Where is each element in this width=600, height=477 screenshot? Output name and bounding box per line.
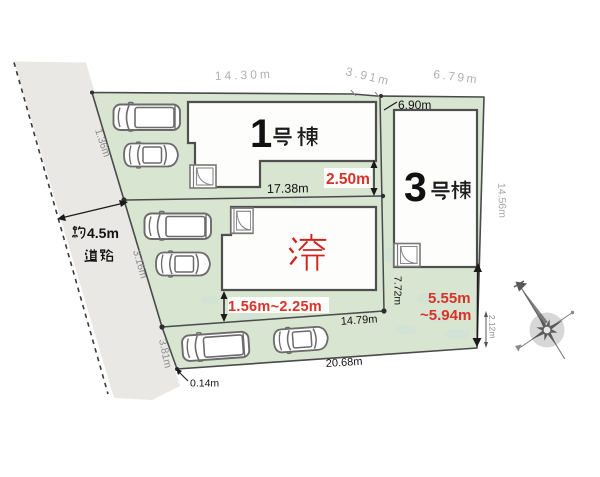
svg-text:14.30m: 14.30m bbox=[215, 67, 273, 83]
svg-text:5.55m: 5.55m bbox=[428, 290, 471, 307]
svg-text:14.56m: 14.56m bbox=[495, 183, 508, 219]
svg-text:1.56m~2.25m: 1.56m~2.25m bbox=[228, 299, 322, 315]
svg-text:2.50m: 2.50m bbox=[326, 171, 370, 188]
svg-text:20.68m: 20.68m bbox=[325, 356, 362, 370]
svg-text:6.79m: 6.79m bbox=[433, 67, 480, 86]
svg-text:0.14m: 0.14m bbox=[190, 378, 219, 390]
svg-text:3: 3 bbox=[404, 164, 427, 210]
svg-text:6.90m: 6.90m bbox=[398, 98, 431, 112]
svg-text:7.72m: 7.72m bbox=[392, 276, 404, 305]
svg-text:3.91m: 3.91m bbox=[344, 64, 392, 88]
svg-text:2.12m: 2.12m bbox=[487, 315, 498, 339]
svg-text:1: 1 bbox=[250, 112, 272, 156]
svg-text:~5.94m: ~5.94m bbox=[420, 307, 471, 324]
svg-text:4.5m: 4.5m bbox=[87, 225, 119, 241]
svg-text:17.38m: 17.38m bbox=[267, 181, 309, 196]
svg-text:14.79m: 14.79m bbox=[340, 313, 377, 328]
